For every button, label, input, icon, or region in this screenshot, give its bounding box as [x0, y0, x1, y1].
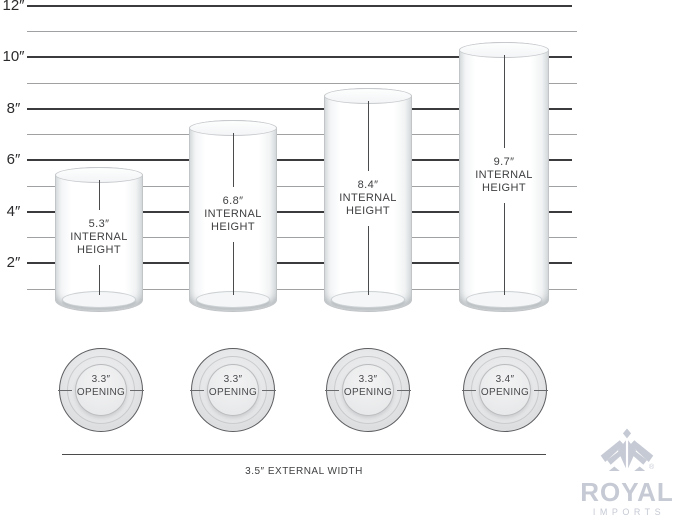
- opening-value: 3.3″: [192, 373, 274, 386]
- internal-height-value: 9.7″: [475, 156, 533, 169]
- ruler-label-2in: 2″: [0, 254, 27, 272]
- external-width-line: [62, 454, 546, 455]
- ruler-label-12in: 12″: [0, 0, 27, 15]
- vase-cylinder-1: 5.3″ INTERNAL HEIGHT: [55, 167, 143, 312]
- internal-height-value: 6.8″: [204, 195, 262, 208]
- opening-caption: OPENING: [60, 386, 142, 399]
- opening-label: 3.3″ OPENING: [192, 373, 274, 399]
- opening-value: 3.3″: [327, 373, 409, 386]
- internal-height-dimension: 5.3″ INTERNAL HEIGHT: [56, 180, 142, 295]
- vase-cylinder-2: 6.8″ INTERNAL HEIGHT: [189, 120, 277, 312]
- internal-height-dimension: 8.4″ INTERNAL HEIGHT: [325, 101, 411, 295]
- internal-height-caption: HEIGHT: [70, 244, 128, 257]
- internal-height-dimension: 6.8″ INTERNAL HEIGHT: [190, 133, 276, 295]
- vase-size-chart: 12″ 10″ 8″ 6″ 4″ 2″ 5.3″ INTERNAL HEIGHT: [0, 0, 679, 518]
- internal-height-caption: HEIGHT: [475, 182, 533, 195]
- dimension-line: [99, 180, 100, 210]
- brand-subtitle: IMPORTS: [575, 507, 679, 518]
- brand-name: ROYAL: [575, 479, 679, 505]
- dimension-line: [233, 133, 234, 187]
- internal-height-caption: HEIGHT: [204, 221, 262, 234]
- ruler-label-8in: 8″: [0, 100, 27, 118]
- vase-cylinder-3: 8.4″ INTERNAL HEIGHT: [324, 88, 412, 312]
- ruler-major-line: [27, 5, 572, 7]
- opening-caption: OPENING: [327, 386, 409, 399]
- opening-top-view-4: 3.4″ OPENING: [463, 348, 547, 432]
- internal-height-caption: INTERNAL: [475, 169, 533, 182]
- ruler-label-6in: 6″: [0, 151, 27, 169]
- internal-height-label: 9.7″ INTERNAL HEIGHT: [475, 156, 533, 195]
- ruler-label-10in: 10″: [0, 48, 27, 66]
- opening-label: 3.4″ OPENING: [464, 373, 546, 399]
- opening-value: 3.4″: [464, 373, 546, 386]
- internal-height-label: 6.8″ INTERNAL HEIGHT: [204, 195, 262, 234]
- opening-caption: OPENING: [464, 386, 546, 399]
- internal-height-caption: INTERNAL: [204, 208, 262, 221]
- dimension-line: [368, 226, 369, 296]
- royal-imports-crown-icon: [598, 428, 656, 476]
- ruler-label-4in: 4″: [0, 203, 27, 221]
- internal-height-caption: INTERNAL: [70, 231, 128, 244]
- internal-height-value: 8.4″: [339, 179, 397, 192]
- internal-height-label: 8.4″ INTERNAL HEIGHT: [339, 179, 397, 218]
- vase-cylinder-4: 9.7″ INTERNAL HEIGHT: [459, 42, 549, 312]
- opening-caption: OPENING: [192, 386, 274, 399]
- opening-label: 3.3″ OPENING: [327, 373, 409, 399]
- opening-top-view-1: 3.3″ OPENING: [59, 348, 143, 432]
- opening-label: 3.3″ OPENING: [60, 373, 142, 399]
- dimension-line: [233, 242, 234, 296]
- dimension-line: [368, 101, 369, 171]
- opening-value: 3.3″: [60, 373, 142, 386]
- dimension-line: [504, 55, 505, 148]
- royal-imports-logo: ® ROYAL IMPORTS: [575, 428, 679, 518]
- external-width-label: 3.5″ EXTERNAL WIDTH: [180, 466, 428, 477]
- internal-height-caption: INTERNAL: [339, 192, 397, 205]
- internal-height-caption: HEIGHT: [339, 205, 397, 218]
- internal-height-label: 5.3″ INTERNAL HEIGHT: [70, 218, 128, 257]
- registered-trademark-symbol: ®: [649, 464, 654, 471]
- internal-height-dimension: 9.7″ INTERNAL HEIGHT: [460, 55, 548, 295]
- internal-height-value: 5.3″: [70, 218, 128, 231]
- opening-top-view-3: 3.3″ OPENING: [326, 348, 410, 432]
- ruler-minor-line: [27, 31, 577, 32]
- opening-top-view-2: 3.3″ OPENING: [191, 348, 275, 432]
- dimension-line: [504, 203, 505, 296]
- dimension-line: [99, 265, 100, 295]
